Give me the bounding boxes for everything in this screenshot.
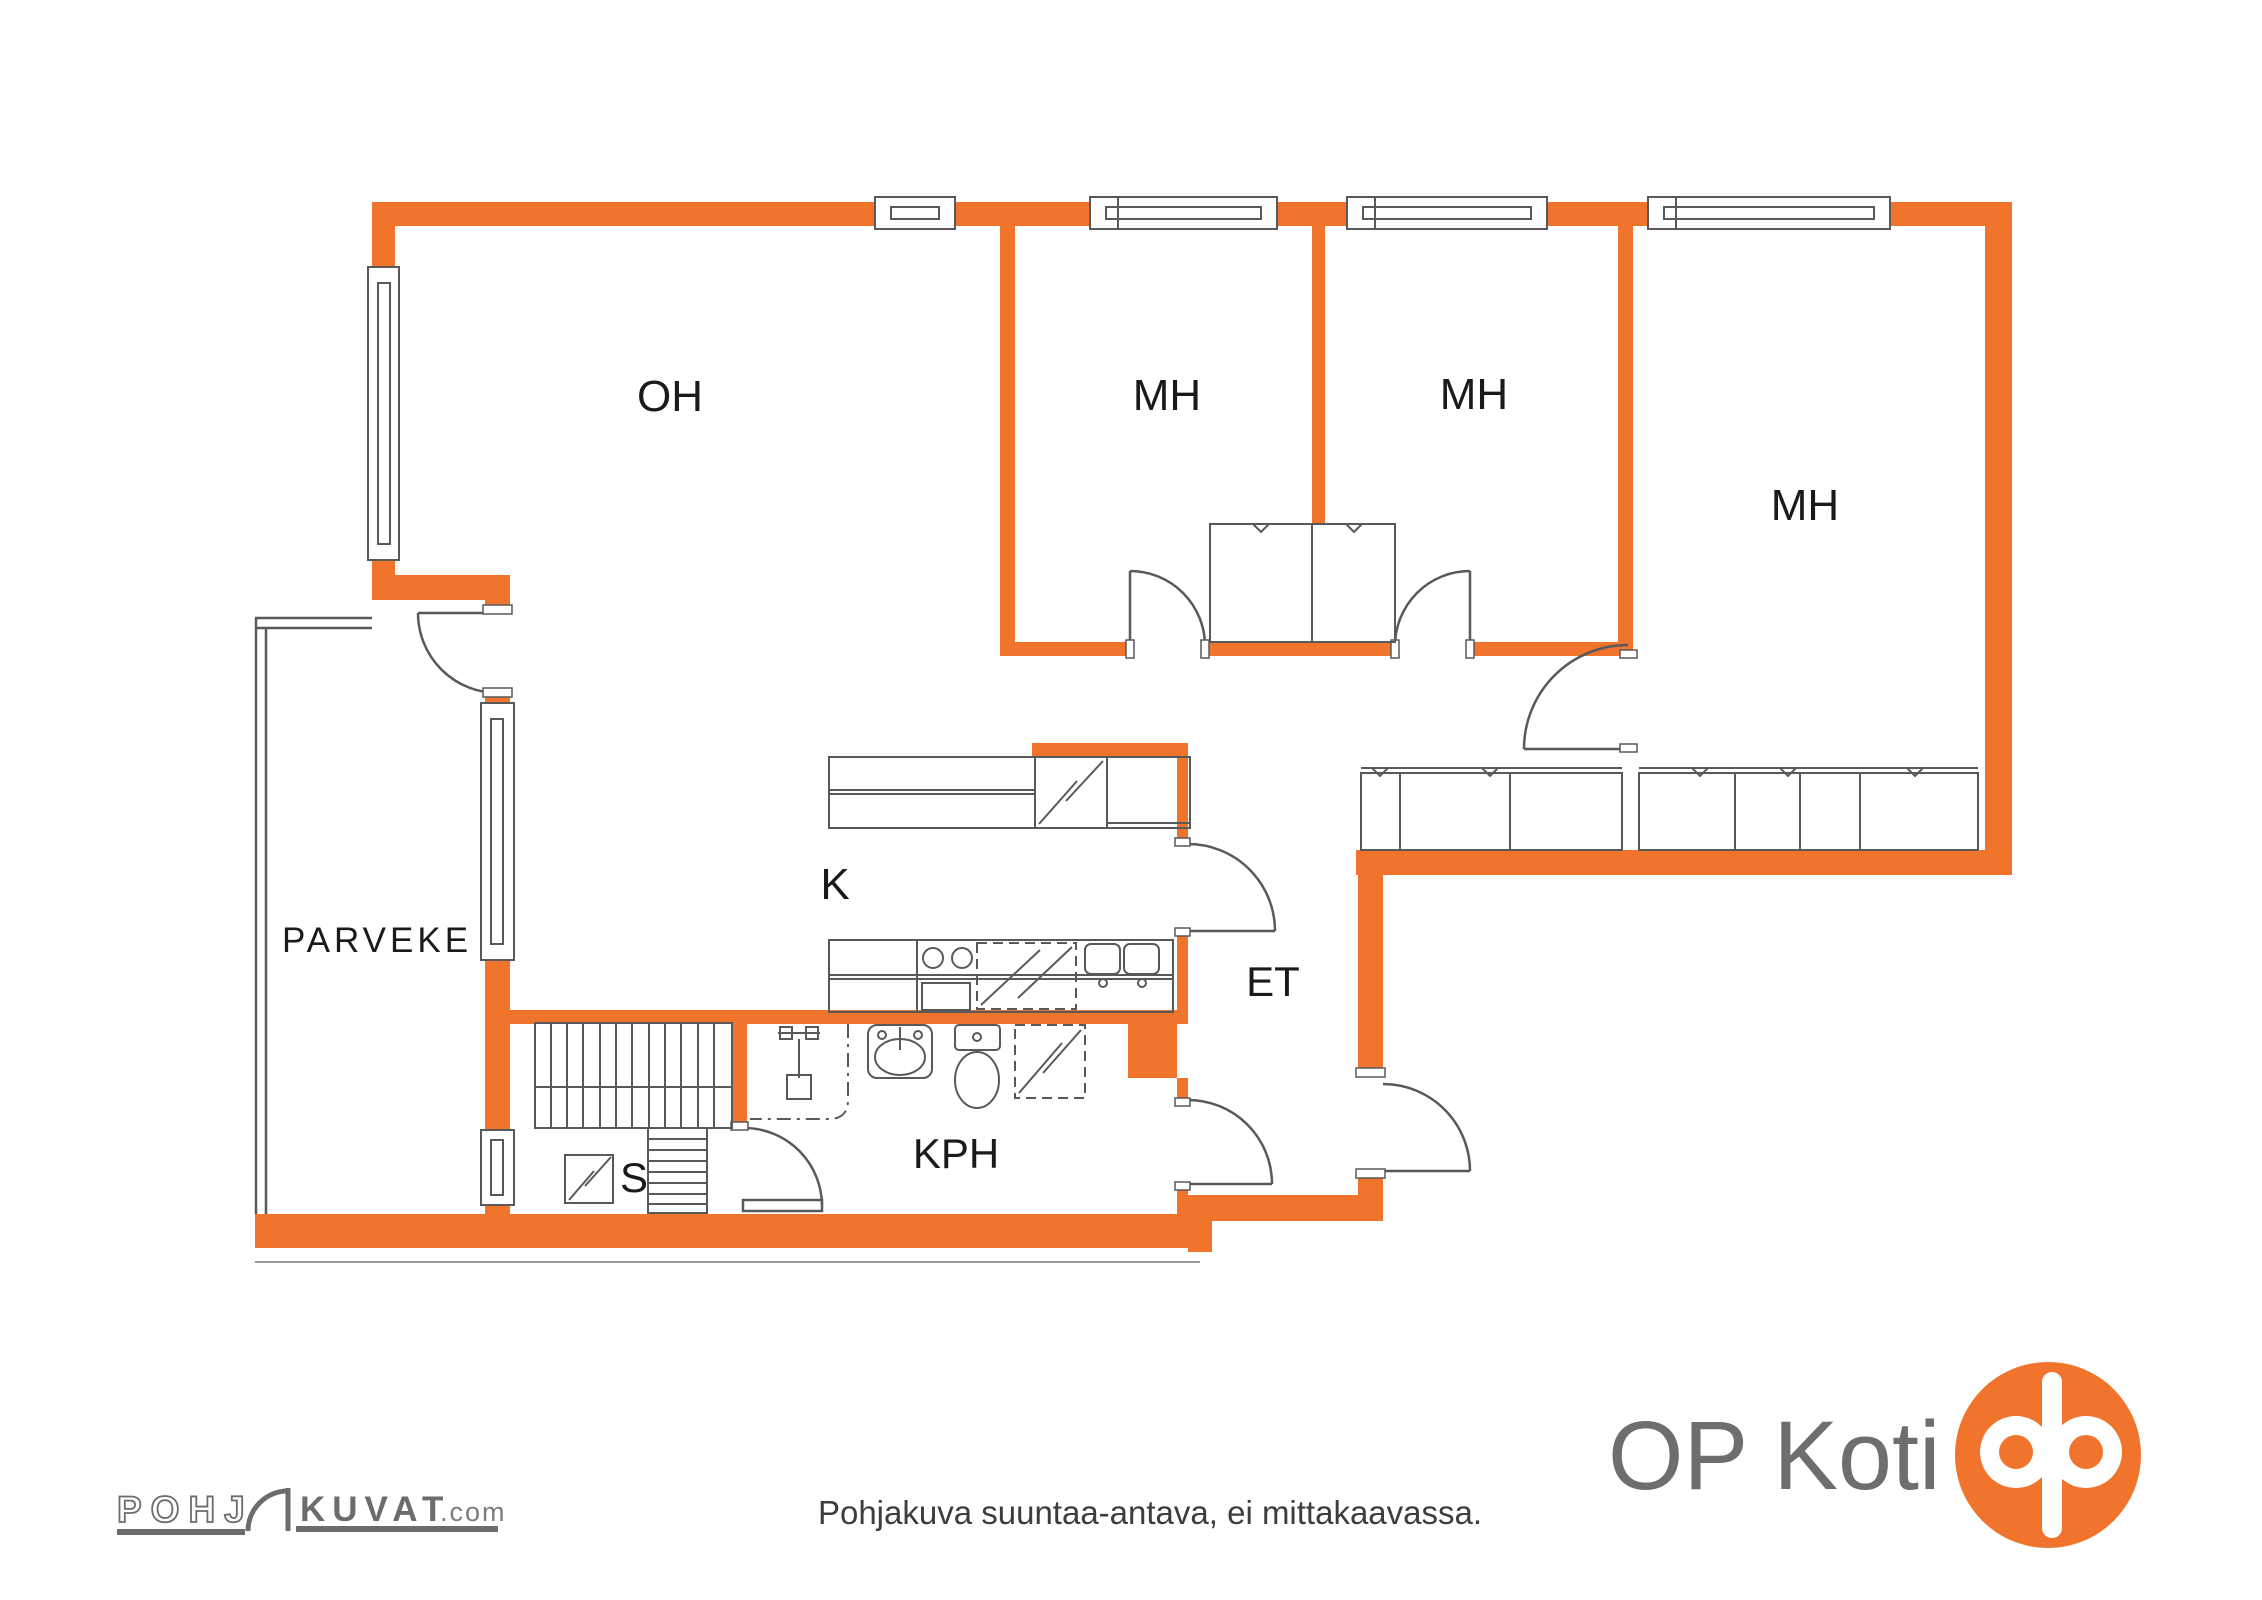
wall-corridor-south	[1032, 743, 1188, 756]
wall-top	[372, 202, 875, 226]
wall-entry-east	[1358, 1178, 1383, 1221]
window-icon	[1090, 197, 1277, 229]
window-icon	[1347, 197, 1547, 229]
room-label-mh1: MH	[1133, 371, 1201, 420]
wall-under-closets	[1205, 642, 1395, 656]
room-label-s: S	[620, 1154, 648, 1201]
room-label-et: ET	[1246, 958, 1300, 1005]
corridor-entry-door	[1188, 844, 1275, 931]
wall-corridor-stub	[1177, 756, 1188, 845]
pohjakuvat-logo-part2: KUVAT	[300, 1490, 450, 1529]
wall-mh2-mh3	[1618, 226, 1633, 642]
window-icon	[875, 197, 955, 229]
pohjakuvat-baseline	[117, 1529, 245, 1535]
stairhall-door	[743, 1128, 822, 1211]
opkoti-logo-text: OP Koti	[1608, 1401, 1941, 1510]
wall-right	[1985, 226, 2012, 850]
sink-icon	[1085, 944, 1159, 987]
window-icon	[481, 703, 514, 960]
door-jambs	[483, 605, 1637, 1190]
wall-kph-corner	[1128, 1010, 1177, 1078]
op-emblem-icon	[1955, 1362, 2141, 1548]
window-icon	[1648, 197, 1890, 229]
kitchen-counter	[829, 940, 1173, 1012]
shower-icon	[778, 1027, 820, 1099]
bathroom-door	[1188, 1100, 1272, 1184]
room-label-mh2: MH	[1440, 370, 1508, 419]
fridge-icon	[1039, 761, 1103, 824]
toilet-icon	[955, 1025, 1000, 1108]
washbasin-icon	[868, 1025, 932, 1078]
opkoti-logo: OP Koti	[1608, 1362, 2141, 1548]
room-label-parveke: PARVEKE	[282, 921, 472, 960]
window-icon	[481, 1130, 514, 1205]
pohjakuvat-logo: POHJ KUVAT .com	[117, 1488, 507, 1535]
wall-closet-bottom	[1356, 850, 2012, 875]
wall-bottom-left	[255, 1214, 1200, 1248]
apartment-entry-door	[1376, 1084, 1470, 1171]
door-glyph-icon	[248, 1488, 288, 1531]
wall-mh1-south	[1000, 642, 1130, 656]
walls	[255, 202, 2012, 1252]
pohjakuvat-logo-suffix: .com	[440, 1497, 507, 1527]
wall-mh2-south	[1470, 642, 1633, 656]
room-label-mh3: MH	[1771, 481, 1839, 530]
wall-stairhall	[732, 1010, 747, 1128]
wall-west-upper	[372, 202, 395, 267]
room-label-k: K	[820, 860, 849, 909]
pohjakuvat-baseline	[296, 1526, 498, 1532]
wall-entry-east	[1358, 852, 1383, 1075]
floorplan-drawing: OH MH MH MH K ET KPH S PARVEKE Pohjakuva…	[0, 0, 2262, 1600]
room-label-oh: OH	[637, 372, 703, 421]
balcony-door	[418, 613, 498, 693]
wall-kph-east	[1177, 935, 1188, 1010]
bedroom2-door	[1395, 571, 1470, 646]
bedroom-closet-pair	[1210, 524, 1395, 642]
wall-west-lower	[485, 960, 510, 1130]
wall-top	[1890, 202, 2012, 226]
wall-mh1-mh2	[1312, 226, 1325, 524]
washing-machine-icon	[1015, 1025, 1085, 1098]
wall-top	[955, 202, 1090, 226]
pohjakuvat-logo-part1: POHJ	[117, 1489, 254, 1530]
bedroom1-door	[1130, 571, 1205, 646]
kitchen-upper-cabinets	[829, 757, 1190, 828]
wall-bottom-right	[1200, 1195, 1383, 1221]
wall-west-upper	[372, 560, 395, 575]
closet-row	[1361, 768, 1978, 850]
balcony-outline	[255, 618, 372, 1214]
room-label-kph: KPH	[913, 1130, 999, 1177]
footer-disclaimer: Pohjakuva suuntaa-antava, ei mittakaavas…	[818, 1494, 1482, 1531]
floorplan-page: OH MH MH MH K ET KPH S PARVEKE Pohjakuva…	[0, 0, 2262, 1600]
sauna-heater-icon	[565, 1155, 613, 1203]
bedroom3-door	[1524, 645, 1628, 749]
wall-top	[1277, 202, 1347, 226]
wall-top	[1547, 202, 1648, 226]
bathroom-fixtures	[750, 1024, 1085, 1119]
window-icon	[368, 267, 399, 560]
wall-oh-mh1	[1000, 226, 1015, 642]
